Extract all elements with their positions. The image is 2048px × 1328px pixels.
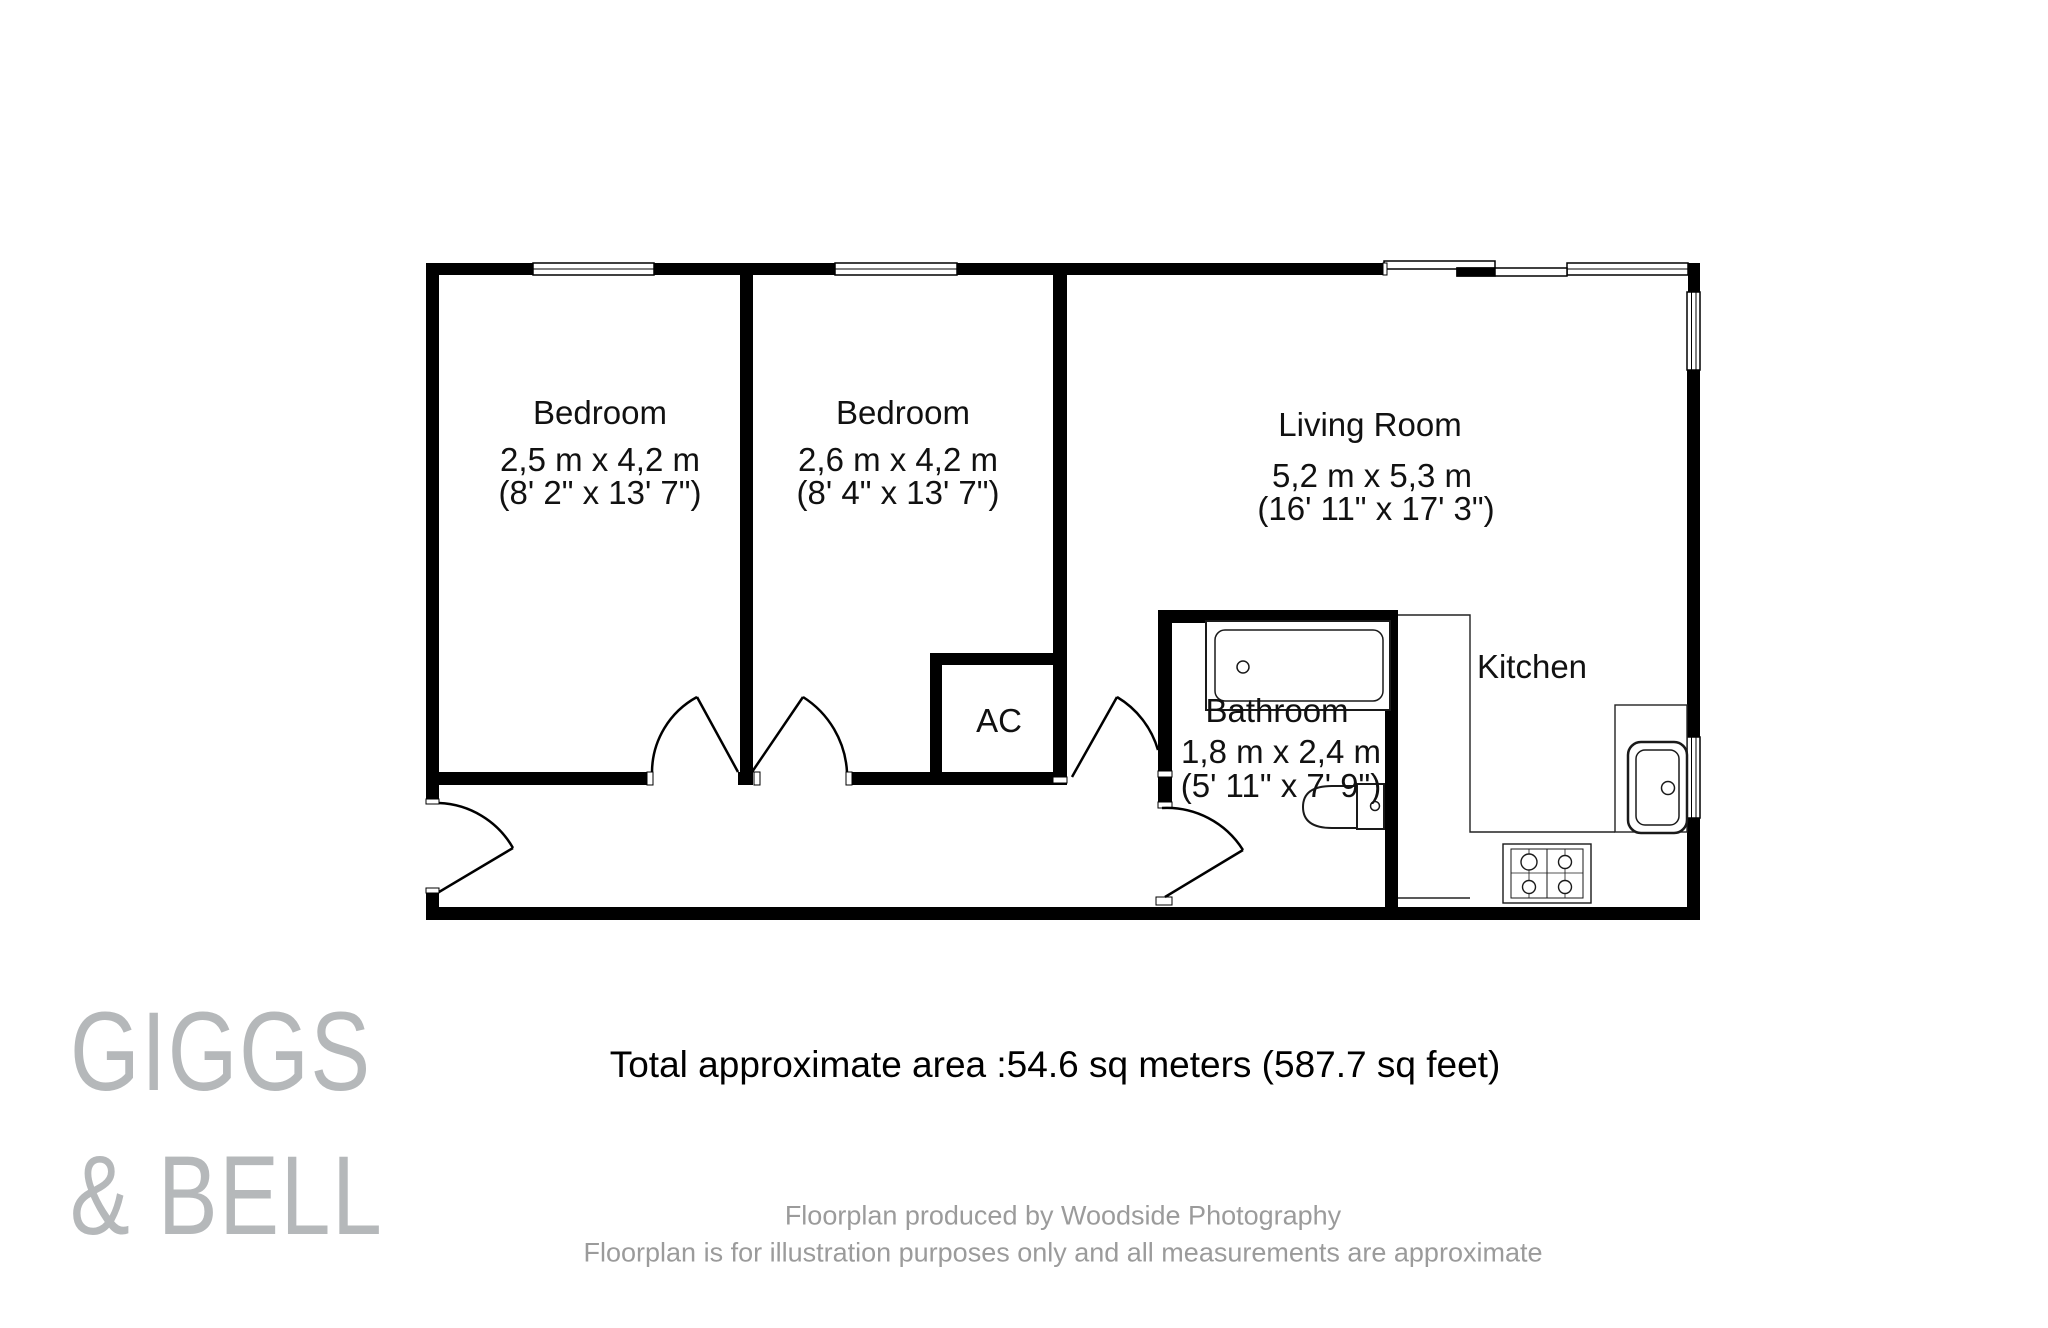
brand-logo-line1: GIGGS [70, 996, 372, 1108]
windows [533, 261, 1700, 818]
door-bedroom1 [652, 697, 738, 772]
room-label-living-room: Living Room [1278, 406, 1461, 444]
room-size-imperial-living-room: (16' 11" x 17' 3") [1257, 490, 1494, 528]
room-label-bedroom2: Bedroom [836, 394, 970, 432]
door-hallway [1072, 697, 1158, 777]
window-living-right [1687, 292, 1700, 370]
door-jambs [426, 263, 1387, 905]
sliding-door [1384, 261, 1567, 276]
door-bathroom [1162, 808, 1243, 897]
total-area-text: Total approximate area :54.6 sq meters (… [610, 1044, 1501, 1086]
footer-disclaimer: Floorplan is for illustration purposes o… [584, 1238, 1543, 1269]
room-size-metric-bathroom: 1,8 m x 2,4 m [1181, 733, 1381, 771]
room-label-ac: AC [976, 702, 1022, 740]
window-bedroom1 [533, 263, 654, 275]
doors [439, 697, 1243, 897]
room-label-bathroom: Bathroom [1205, 692, 1348, 730]
floorplan-drawing [0, 0, 2048, 1328]
room-size-imperial-bathroom: (5' 11" x 7' 9") [1181, 767, 1382, 805]
walls [426, 263, 1700, 920]
door-entrance [439, 803, 513, 892]
room-size-imperial-bedroom2: (8' 4" x 13' 7") [797, 474, 1000, 512]
door-bedroom2 [752, 697, 847, 772]
room-label-kitchen: Kitchen [1477, 648, 1587, 686]
room-size-imperial-bedroom1: (8' 2" x 13' 7") [499, 474, 702, 512]
window-living-top [1567, 263, 1688, 275]
stove [1503, 844, 1591, 903]
brand-logo-line2: & BELL [70, 1140, 383, 1252]
floorplan-page: Bedroom 2,5 m x 4,2 m (8' 2" x 13' 7") B… [0, 0, 2048, 1328]
footer-credit: Floorplan produced by Woodside Photograp… [785, 1201, 1341, 1232]
room-label-bedroom1: Bedroom [533, 394, 667, 432]
window-bedroom2 [835, 263, 957, 275]
kitchen-sink [1628, 742, 1687, 833]
window-kitchen-right [1687, 737, 1700, 818]
